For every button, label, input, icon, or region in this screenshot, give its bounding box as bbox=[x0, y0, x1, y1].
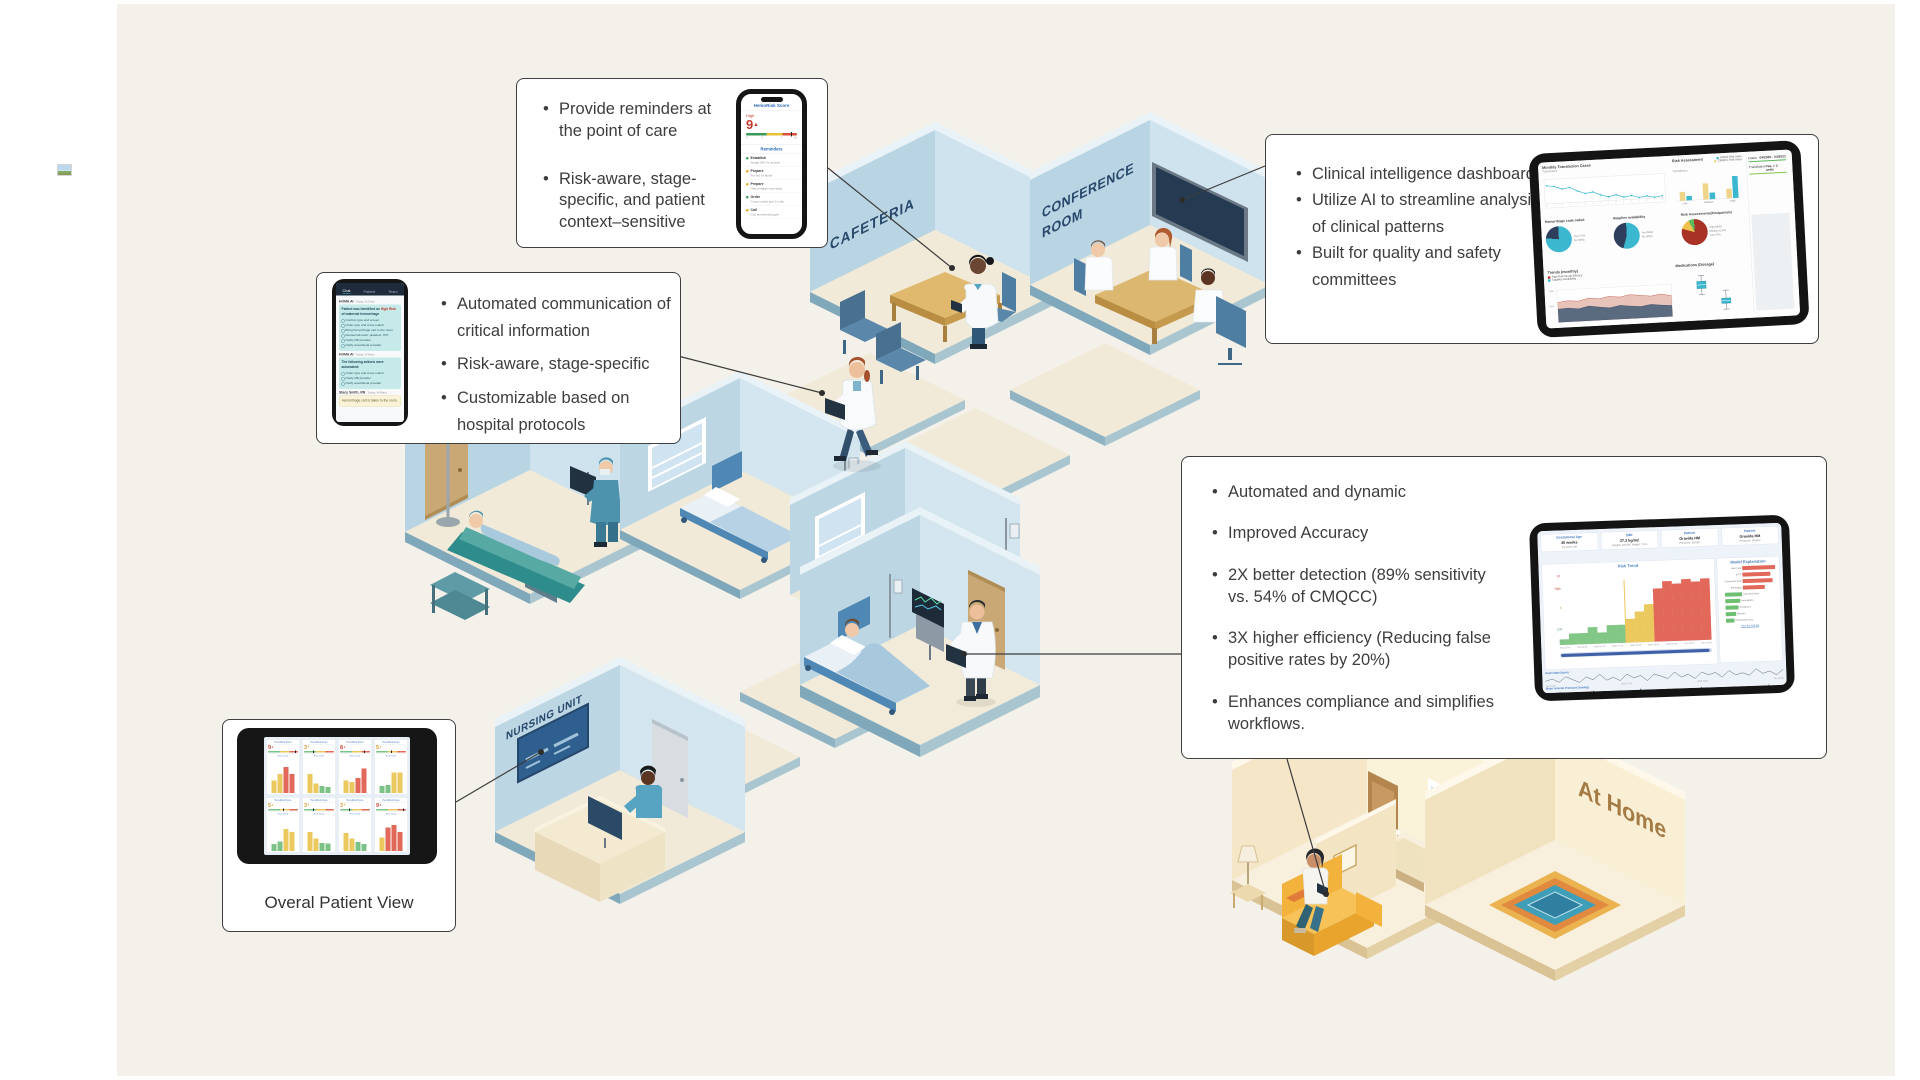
bullet: 3X higher efficiency (Reducing false pos… bbox=[1212, 627, 1502, 672]
panel-risk-trend: Risk Trend 10High5Low0 Tue 16:00Tue 23:0… bbox=[1541, 558, 1718, 670]
reminder-item: OrderCross match and 2 units bbox=[741, 193, 802, 206]
panel-medications: Medications (Dosage) bbox=[1675, 260, 1750, 318]
bullet: Automated communication of critical info… bbox=[441, 291, 673, 344]
connector-dot bbox=[819, 390, 825, 396]
connector-dot bbox=[961, 651, 967, 657]
bullet: Enhances compliance and simplifies workf… bbox=[1212, 691, 1502, 736]
risk-score: 9▲ bbox=[746, 118, 802, 131]
chat-bubble: The following actions were automated: Or… bbox=[339, 358, 401, 390]
cafeteria-room: CAFETERIA bbox=[810, 122, 1060, 384]
reminder-item: EstablishSingle 18G IV access bbox=[741, 154, 802, 167]
patient-mini-card: HemoRisk Score9▲Risk Trend bbox=[374, 797, 408, 853]
connector-dot bbox=[1323, 891, 1329, 897]
tab-team: Team bbox=[388, 290, 397, 295]
message-meta: HOMA AIToday, 8:27am bbox=[339, 300, 401, 304]
stat-cards: Gestational Age30 weeks24 years oldBMI27… bbox=[1540, 526, 1778, 552]
patient-mini-card: HemoRisk Score5▲Risk Trend bbox=[374, 739, 408, 795]
panel-trends: Trends (monthly) High Risk Group Efficac… bbox=[1547, 264, 1674, 324]
bullet: Built for quality and safety committees bbox=[1296, 240, 1546, 293]
bullet: 2X better detection (89% sensitivity vs.… bbox=[1212, 564, 1502, 609]
status-dot bbox=[746, 170, 749, 173]
connector-dot bbox=[1179, 197, 1185, 203]
tab-chat: Chat bbox=[343, 289, 351, 295]
see-full-list-link: See the full list bbox=[1719, 623, 1781, 628]
bullet: Risk-aware, stage-specific, and patient … bbox=[543, 169, 735, 234]
callout-reminders: Provide reminders at the point of care R… bbox=[516, 78, 828, 248]
tiny-thumbnail bbox=[57, 164, 72, 176]
panel-pie-supplies: Supplies availability Yes (55%)No (45%) bbox=[1613, 214, 1679, 263]
callout-detection: Automated and dynamic Improved Accuracy … bbox=[1181, 456, 1827, 759]
conference-room: CONFERENCE ROOM bbox=[1030, 112, 1270, 364]
panel-monthly-transfusion: Monthly Transfusion Cases Transfusion bbox=[1542, 159, 1670, 216]
bullet: Automated and dynamic bbox=[1212, 481, 1502, 503]
tablet-clinical-dashboard: Monthly Transfusion Cases Transfusion Ri… bbox=[1528, 140, 1809, 338]
arrow-up-icon: ▲ bbox=[753, 122, 758, 128]
status-dot bbox=[746, 183, 749, 186]
chart-scrollbar bbox=[1560, 648, 1712, 658]
chat-tabs: Chat Patient Team bbox=[336, 283, 404, 296]
tab-patient: Patient bbox=[364, 290, 376, 295]
bullet: Utilize AI to streamline analysis of cli… bbox=[1296, 187, 1546, 240]
overview-caption: Overal Patient View bbox=[223, 893, 455, 913]
nursing-unit: NURSING UNIT bbox=[495, 657, 745, 904]
bullet: Improved Accuracy bbox=[1212, 522, 1502, 544]
message-meta: Stacy Smith, RNToday, 8:40am bbox=[339, 391, 401, 395]
phone-mockup-chat: Chat Patient Team HOMA AIToday, 8:27am P… bbox=[332, 279, 408, 426]
callout-overview: HemoRisk Score9▲Risk TrendHemoRisk Score… bbox=[222, 719, 456, 932]
panel-model-explanation: Model Explanation Heart rateaPTTCholeste… bbox=[1716, 556, 1783, 663]
stat-card: PatientGravida HMPressure: Shorter bbox=[1721, 526, 1779, 546]
panel-risk-assessment: Risk Assessment HOMA Risk Index CMQCC Ri… bbox=[1672, 155, 1745, 209]
stat-card: BMI27.3 kg/m2Weight: 160 lbs, Height: 70… bbox=[1601, 530, 1659, 550]
phone-notch bbox=[761, 97, 783, 102]
reminder-item: PrepareHemorrhage cart ready bbox=[741, 180, 802, 193]
bullet: Customizable based on hospital protocols bbox=[441, 385, 673, 438]
dashboard-sidebar: Dates04/2020 - 04/2021 TransfusionYes, >… bbox=[1746, 153, 1796, 314]
connector-dot bbox=[949, 265, 955, 271]
tablet-risk-trend: Gestational Age30 weeks24 years oldBMI27… bbox=[1529, 515, 1795, 702]
chat-bubble: Hemorrhage cart is taken to the room. bbox=[339, 396, 401, 407]
stat-card: PatientGravida HMPressure: Shorter bbox=[1661, 528, 1719, 548]
bullet: Risk-aware, stage-specific bbox=[441, 351, 673, 378]
risk-scale-labels: 0 3 7 10 bbox=[746, 137, 797, 141]
patient-mini-card: HemoRisk Score8▲Risk Trend bbox=[338, 739, 372, 795]
tablet-overview: HemoRisk Score9▲Risk TrendHemoRisk Score… bbox=[237, 728, 437, 864]
reminders-section-title: Reminders bbox=[741, 144, 802, 154]
bullet: Provide reminders at the point of care bbox=[543, 99, 735, 143]
risk-scale-slider bbox=[746, 133, 797, 136]
patient-mini-card: HemoRisk Score3▼Risk Trend bbox=[338, 797, 372, 853]
panel-pie-risk-postpartum: Risk Assessments(Postpartum) High (80%)M… bbox=[1681, 210, 1747, 259]
reminder-item: PrepareFor NS IV fluids bbox=[741, 167, 802, 180]
patient-mini-card: HemoRisk Score3▼Risk Trend bbox=[302, 739, 336, 795]
status-dot bbox=[746, 196, 749, 199]
callout-clinical-dashboard: Clinical intelligence dashboard Utilize … bbox=[1265, 134, 1819, 344]
hemorisk-score-title: HemoRisk Score bbox=[741, 103, 802, 111]
connector-dot bbox=[538, 749, 544, 755]
stat-card: Gestational Age30 weeks24 years old bbox=[1540, 532, 1598, 552]
panel-pie-hemorrhage: Hemorrhage code called Yes (77%)No (23%) bbox=[1545, 217, 1611, 266]
callout-communication: Chat Patient Team HOMA AIToday, 8:27am P… bbox=[316, 272, 681, 444]
patient-mini-card: HemoRisk Score9▲Risk Trend bbox=[266, 739, 300, 795]
status-dot bbox=[746, 209, 749, 212]
reminder-item: CallCall anesthesiologist bbox=[741, 206, 802, 219]
patient-mini-card: HemoRisk Score3▼Risk Trend bbox=[302, 797, 336, 853]
bullet: Clinical intelligence dashboard bbox=[1296, 161, 1546, 187]
phone-mockup-reminders: HemoRisk Score High 9▲ 0 3 7 10 Reminder… bbox=[736, 89, 807, 239]
patient-mini-card: HemoRisk Score5▲Risk Trend bbox=[266, 797, 300, 853]
chat-bubble: Patient was identified as High Risk of m… bbox=[339, 305, 401, 352]
status-dot bbox=[746, 157, 749, 160]
message-meta: HOMA AIToday, 8:36am bbox=[339, 353, 401, 357]
